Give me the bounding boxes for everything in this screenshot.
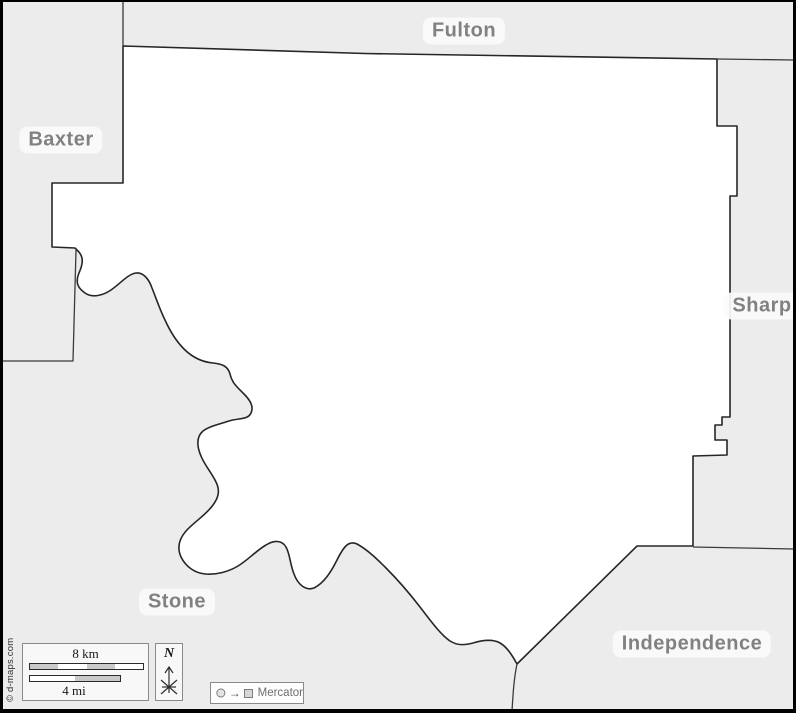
north-arrow-icon	[157, 661, 181, 697]
projection-arrow-icon: →	[229, 687, 241, 699]
projection-box: → Mercator	[210, 682, 304, 704]
scale-segment	[30, 664, 58, 669]
scale-bar-mi	[29, 675, 121, 682]
globe-circle-icon	[216, 687, 226, 699]
north-label: N	[156, 646, 182, 661]
region-label-baxter: Baxter	[19, 127, 102, 154]
scale-segment	[87, 664, 115, 669]
scale-segment	[115, 664, 143, 669]
scale-mi-label: 4 mi	[29, 684, 119, 698]
region-label-stone: Stone	[139, 589, 215, 616]
map-canvas: Fulton Baxter Sharp Stone Independence 8…	[0, 0, 796, 713]
copyright-text: © d-maps.com	[5, 638, 16, 702]
scale-bar-box: 8 km 4 mi	[22, 643, 149, 701]
scale-segment	[30, 676, 75, 681]
scale-segment	[75, 676, 120, 681]
region-label-independence: Independence	[613, 631, 771, 658]
region-label-sharp: Sharp	[723, 293, 796, 320]
scale-km-label: 8 km	[29, 647, 142, 661]
scale-bar-km	[29, 663, 144, 670]
region-label-fulton: Fulton	[423, 18, 505, 45]
county-map-svg	[0, 0, 796, 713]
projected-square-icon	[244, 688, 253, 699]
projection-label: Mercator	[258, 687, 303, 699]
scale-segment	[58, 664, 86, 669]
north-arrow-box: N	[155, 643, 183, 701]
